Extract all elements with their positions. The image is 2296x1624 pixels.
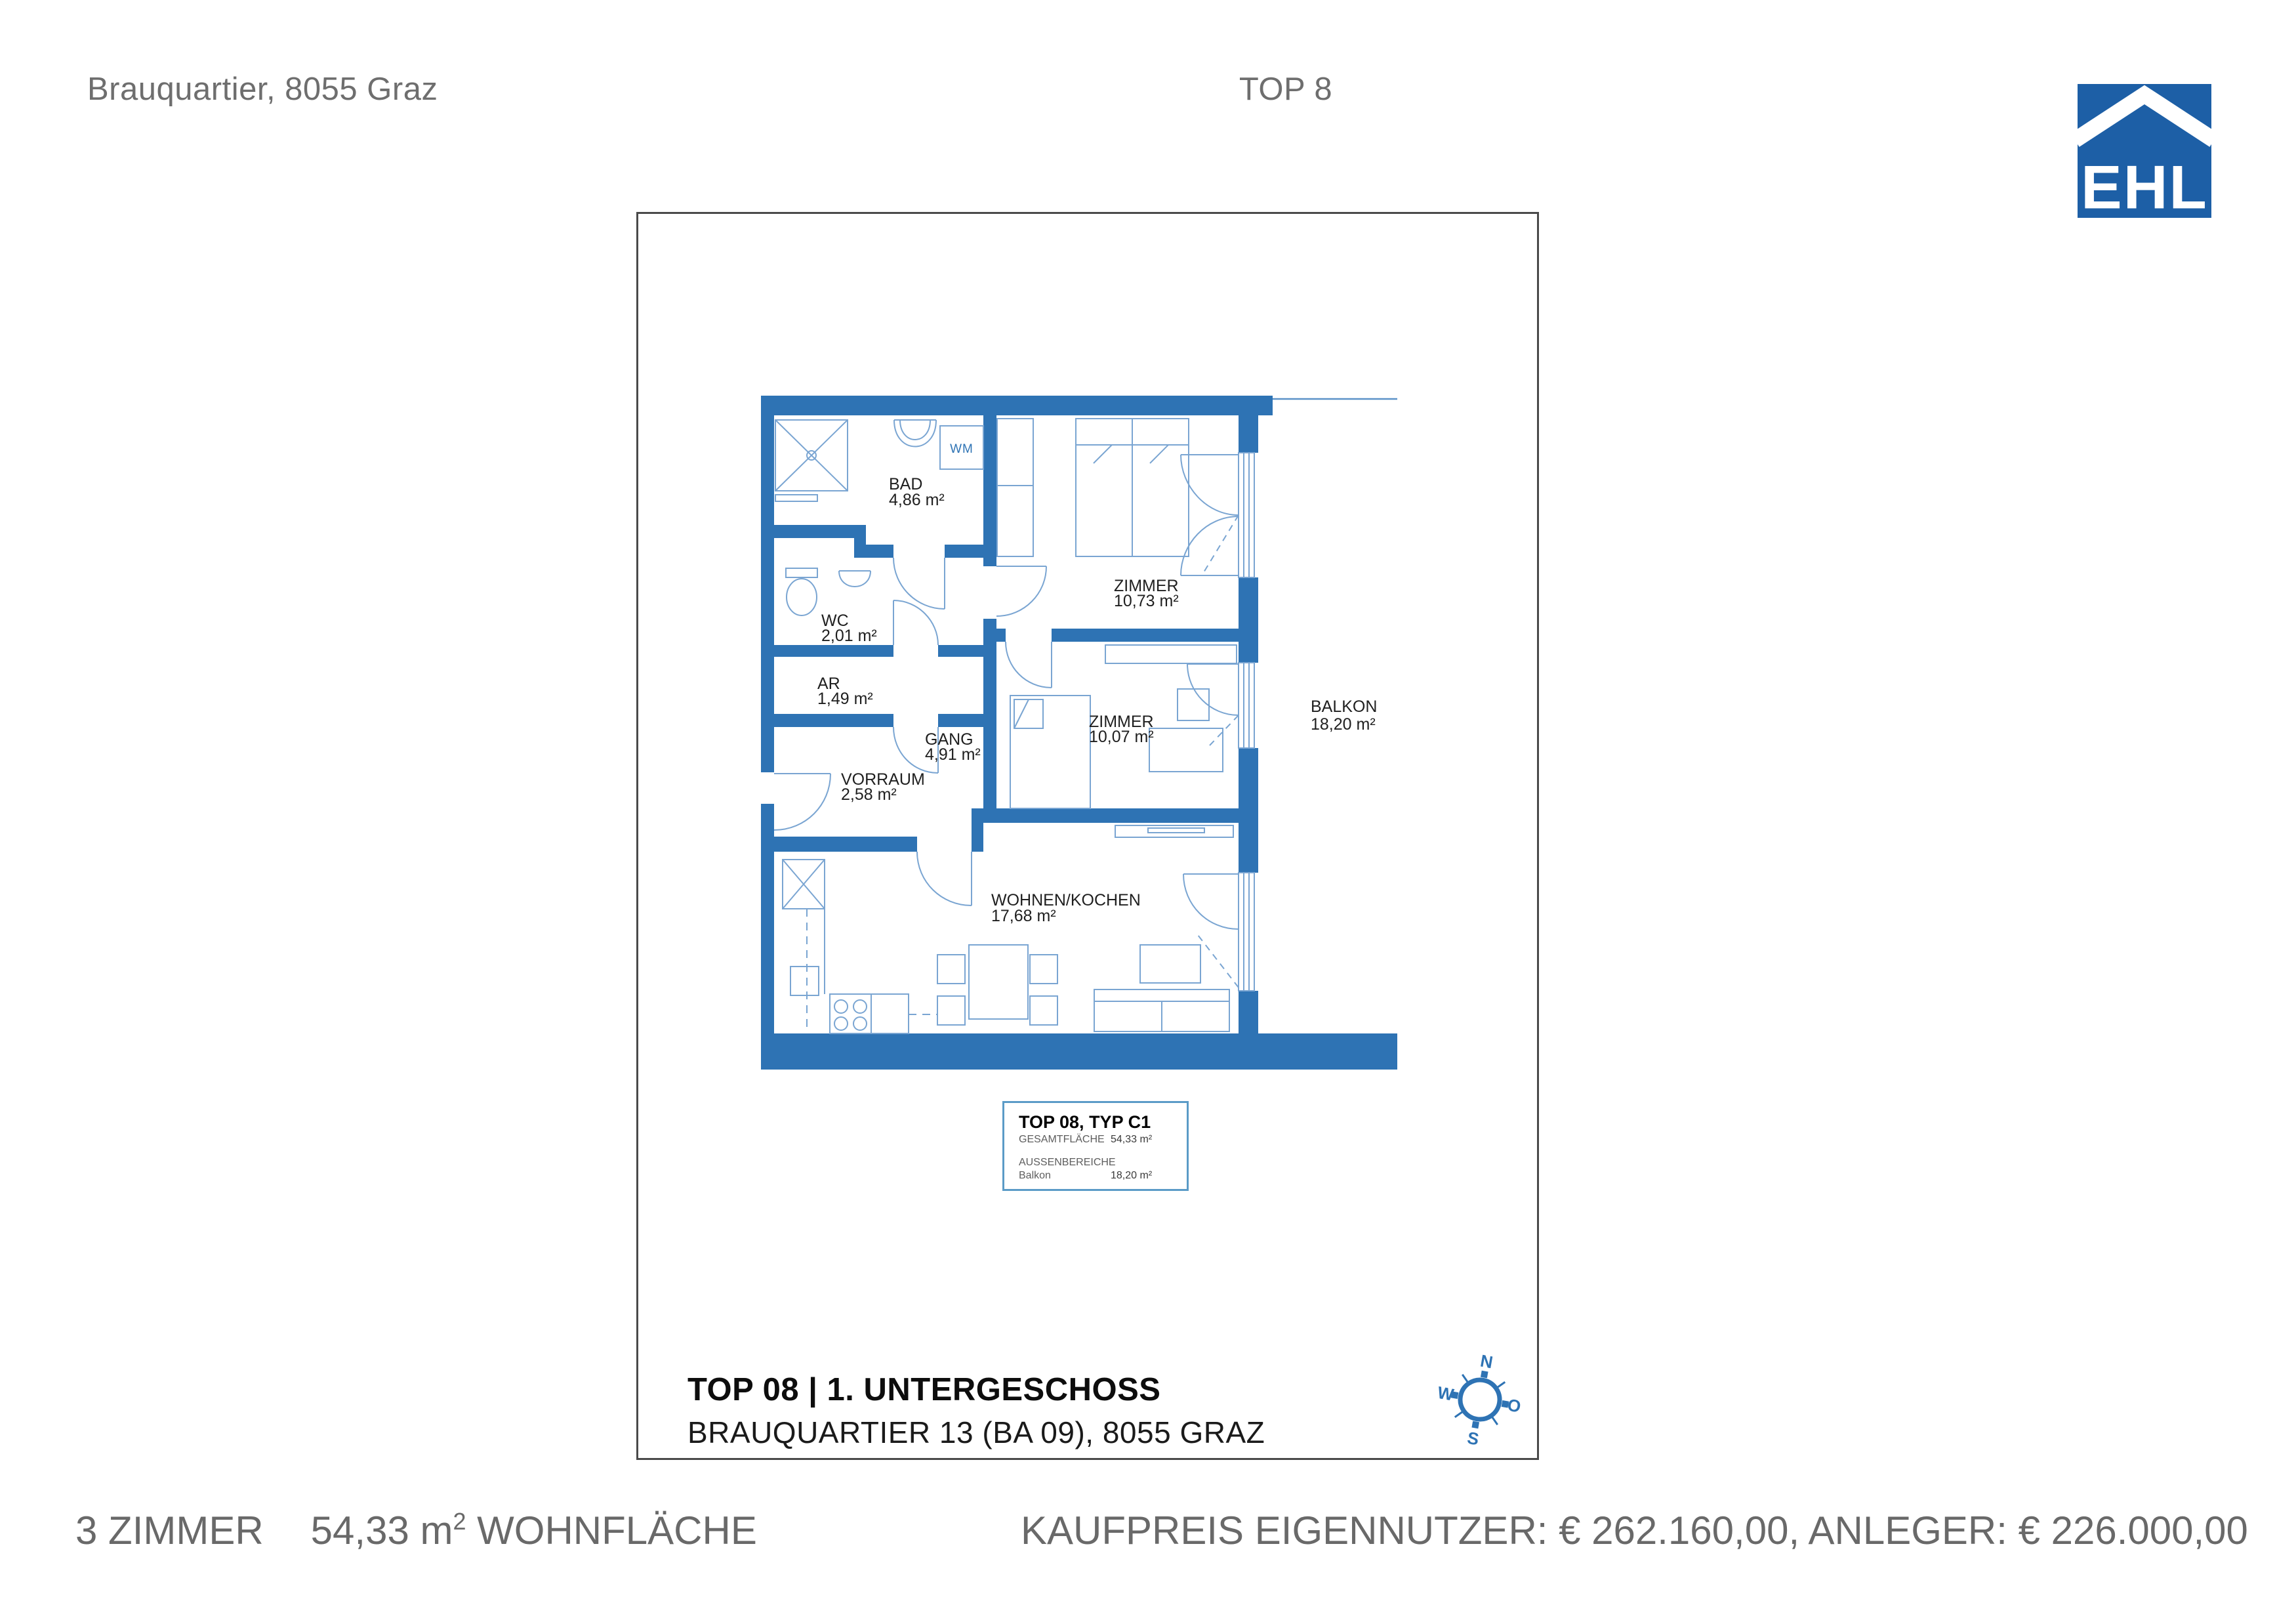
price-line: KAUFPREIS EIGENNUTZER: € 262.160,00, ANL…: [1021, 1508, 2248, 1553]
kitchen-counter-icon: [871, 994, 909, 1033]
dining-table-icon: [969, 945, 1028, 1019]
compass-w: W: [1436, 1383, 1456, 1405]
wardrobe-icon: [997, 419, 1033, 556]
room-area: 4,86 m²: [889, 491, 945, 509]
superscript-2: 2: [453, 1508, 466, 1535]
room-area: 4,91 m²: [925, 745, 981, 764]
walls: [761, 396, 1397, 1070]
room-area: 1,49 m²: [817, 690, 873, 708]
chair-icon: [937, 955, 965, 984]
unit-info-box: TOP 08, TYP C1 GESAMTFLÄCHE 54,33 m² AUS…: [1002, 1101, 1189, 1191]
room-labels: BAD 4,86 m² WC 2,01 m² AR 1,49 m² GANG 4…: [817, 442, 1377, 925]
outdoor-value: 18,20 m²: [1111, 1170, 1152, 1182]
exposé-page: Brauquartier, 8055 Graz TOP 8 EHL: [0, 0, 2296, 1624]
toilet-icon: [786, 568, 817, 577]
window-icon: [1239, 453, 1254, 991]
total-area-value: 54,33 m²: [1111, 1134, 1152, 1146]
chair-icon: [1030, 955, 1057, 984]
coffee-table-icon: [1140, 945, 1200, 983]
compass-s: S: [1466, 1428, 1480, 1449]
unit-number: TOP 8: [1239, 71, 1332, 108]
room-count: 3 ZIMMER: [75, 1508, 264, 1553]
outdoor-name: Balkon: [1019, 1170, 1051, 1182]
room-area: 10,07 m²: [1089, 728, 1154, 746]
room-label: BALKON: [1311, 697, 1377, 716]
compass-circle: [1457, 1377, 1503, 1423]
room-area: 2,01 m²: [821, 627, 877, 645]
compass-rose: N O S W: [1427, 1347, 1532, 1452]
room-area: 10,73 m²: [1114, 592, 1179, 610]
chair-icon: [937, 996, 965, 1025]
info-title: TOP 08, TYP C1: [1019, 1112, 1151, 1133]
plan-title-block: TOP 08 | 1. UNTERGESCHOSS BRAUQUARTIER 1…: [687, 1371, 1265, 1450]
wm-label: WM: [950, 442, 974, 456]
desk-icon: [1149, 728, 1223, 772]
wardrobe-icon: [1105, 645, 1237, 663]
plan-subtitle: BRAUQUARTIER 13 (BA 09), 8055 GRAZ: [687, 1415, 1265, 1450]
sideboard-icon: [1115, 825, 1233, 837]
chair-icon: [1178, 689, 1209, 720]
floorplan-frame: BAD 4,86 m² WC 2,01 m² AR 1,49 m² GANG 4…: [636, 212, 1539, 1460]
outdoor-label: AUSSENBEREICHE: [1019, 1157, 1116, 1169]
plan-title: TOP 08 | 1. UNTERGESCHOSS: [687, 1371, 1265, 1408]
chair-icon: [1030, 996, 1057, 1025]
total-area-label: GESAMTFLÄCHE: [1019, 1134, 1105, 1146]
room-area: 2,58 m²: [841, 785, 897, 804]
ehl-logo: EHL: [2076, 84, 2213, 218]
room-area: 18,20 m²: [1311, 715, 1376, 734]
logo-text: EHL: [2081, 153, 2208, 218]
project-address: Brauquartier, 8055 Graz: [87, 71, 438, 108]
room-area: 17,68 m²: [991, 907, 1056, 925]
compass-n: N: [1479, 1350, 1494, 1372]
floorplan-drawing: BAD 4,86 m² WC 2,01 m² AR 1,49 m² GANG 4…: [748, 381, 1397, 1076]
living-area: 54,33 m2 WOHNFLÄCHE: [311, 1508, 757, 1553]
compass-o: O: [1506, 1395, 1523, 1417]
bed-icon: [1132, 419, 1189, 556]
bed-icon: [1076, 419, 1132, 556]
unit-summary: 3 ZIMMER 54,33 m2 WOHNFLÄCHE: [75, 1508, 757, 1553]
